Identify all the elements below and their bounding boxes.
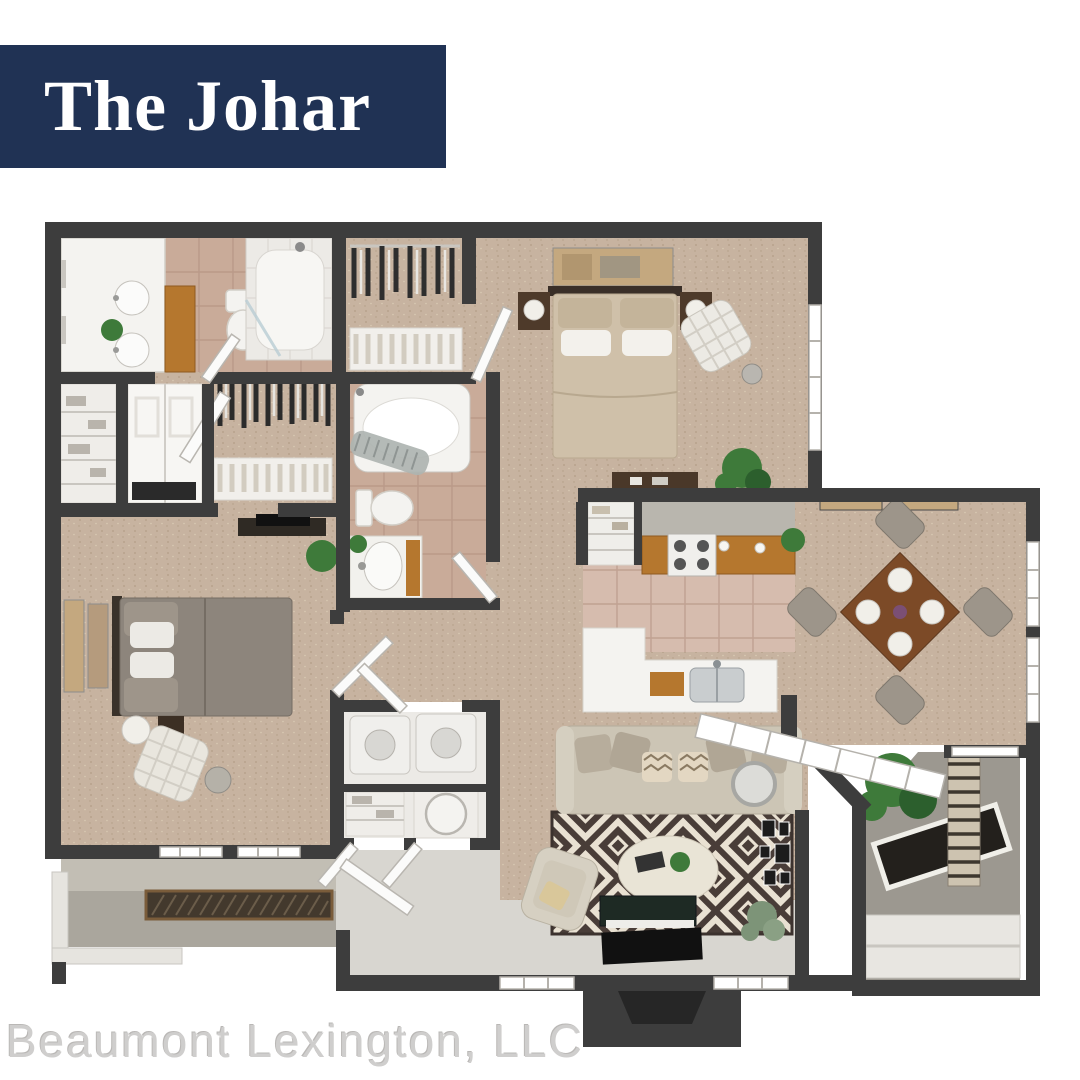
wall-closets-bottom-c bbox=[470, 838, 500, 850]
wall-bath-bottom-a bbox=[52, 372, 155, 384]
water-heater bbox=[426, 794, 466, 834]
wall-bedroom2-right-a bbox=[330, 610, 344, 624]
sink bbox=[115, 333, 149, 367]
gallery-wall bbox=[760, 820, 790, 885]
pillow bbox=[561, 330, 611, 356]
showerhead bbox=[356, 388, 364, 396]
wood-cabinet bbox=[165, 286, 195, 372]
wall-bath-bottom-b bbox=[210, 372, 336, 384]
plant bbox=[349, 535, 367, 553]
pillow bbox=[558, 298, 612, 328]
washer-door bbox=[365, 730, 395, 760]
pillow bbox=[130, 652, 174, 678]
patio-rail bbox=[52, 948, 182, 964]
linen-closet bbox=[61, 384, 116, 503]
plant bbox=[306, 540, 338, 572]
dryer-door bbox=[431, 728, 461, 758]
centerpiece bbox=[893, 605, 907, 619]
stoop-step bbox=[618, 991, 706, 1024]
faucet bbox=[713, 660, 721, 668]
window-dining-2 bbox=[1027, 638, 1039, 722]
living-room bbox=[518, 726, 802, 965]
wall-balcony-bottom bbox=[852, 980, 1040, 996]
toilet-tank bbox=[356, 490, 372, 526]
hanging-clothes-light bbox=[356, 334, 452, 364]
wall-bedroom2-top-b bbox=[278, 503, 346, 517]
company-watermark: Beaumont Lexington, LLC bbox=[6, 1014, 584, 1068]
wall-pantry-left bbox=[576, 502, 588, 565]
wall-closet-bedroom-divider bbox=[462, 238, 476, 304]
patio-step bbox=[61, 859, 336, 891]
entry-stoop bbox=[583, 991, 741, 1047]
wall-art bbox=[64, 600, 84, 692]
plant-leaf bbox=[741, 923, 759, 941]
wall-laundry-mid bbox=[344, 784, 486, 792]
sink bbox=[115, 281, 149, 315]
wall-bath2-left bbox=[336, 372, 350, 612]
wall-hexcloset-left bbox=[202, 384, 214, 508]
wall-top bbox=[45, 222, 822, 238]
window-bedroom2-1 bbox=[160, 847, 222, 857]
plant-leaf bbox=[763, 919, 785, 941]
wall-balcony-left bbox=[852, 806, 866, 980]
floorplan-image bbox=[0, 0, 1080, 1080]
rail-post bbox=[52, 962, 66, 984]
wall-laundry-right bbox=[486, 700, 500, 850]
lamp bbox=[122, 716, 150, 744]
pillow bbox=[130, 622, 174, 648]
wall-art bbox=[88, 604, 108, 688]
sink bbox=[364, 542, 402, 590]
window-dining-balcony bbox=[952, 747, 1018, 756]
wall-entry-left-b bbox=[336, 930, 350, 975]
wall-linen-divider bbox=[116, 384, 128, 508]
window-living-2 bbox=[714, 977, 788, 989]
plant bbox=[670, 852, 690, 872]
wall-master-bottom bbox=[578, 488, 1040, 502]
window-living-1 bbox=[500, 977, 574, 989]
showerhead bbox=[295, 242, 305, 252]
window-dining-1 bbox=[1027, 542, 1039, 626]
wall-bath-closet-divider bbox=[332, 238, 346, 384]
coffee-table bbox=[618, 836, 718, 904]
door-mat-grate bbox=[146, 891, 332, 919]
upper-cabinets bbox=[642, 502, 795, 536]
window-bedroom2-2 bbox=[238, 847, 300, 857]
wall-left bbox=[45, 238, 61, 859]
wall-bedroom2-top-a bbox=[52, 503, 218, 517]
sofa-arm bbox=[556, 726, 574, 814]
wall-living-right bbox=[795, 810, 809, 975]
sofa-pillow bbox=[574, 733, 615, 774]
toilet-bowl bbox=[371, 491, 413, 525]
stored-clothes bbox=[132, 482, 196, 500]
counter bbox=[642, 536, 668, 574]
pillow bbox=[622, 330, 672, 356]
plant bbox=[101, 319, 123, 341]
lamp bbox=[524, 300, 544, 320]
stove bbox=[668, 534, 716, 576]
laundry-closet bbox=[344, 712, 486, 838]
round-table bbox=[205, 767, 231, 793]
soundbar bbox=[606, 920, 694, 928]
floor-lamp bbox=[742, 364, 762, 384]
wall-bedroom2-right-b bbox=[330, 690, 344, 845]
wall-pantry-right bbox=[634, 502, 642, 565]
tv bbox=[601, 927, 703, 964]
wall-bath2-right bbox=[486, 372, 500, 562]
wood-cabinet bbox=[406, 540, 420, 596]
pillow bbox=[124, 678, 178, 712]
wall-closet-bottom bbox=[346, 372, 476, 384]
cutting-board bbox=[650, 672, 684, 696]
round-mirror bbox=[733, 763, 775, 805]
wall-bath2-bottom bbox=[336, 598, 500, 610]
plant bbox=[781, 528, 805, 552]
window-master-bedroom bbox=[809, 305, 821, 450]
double-vanity bbox=[61, 238, 165, 372]
pillow bbox=[620, 298, 674, 328]
